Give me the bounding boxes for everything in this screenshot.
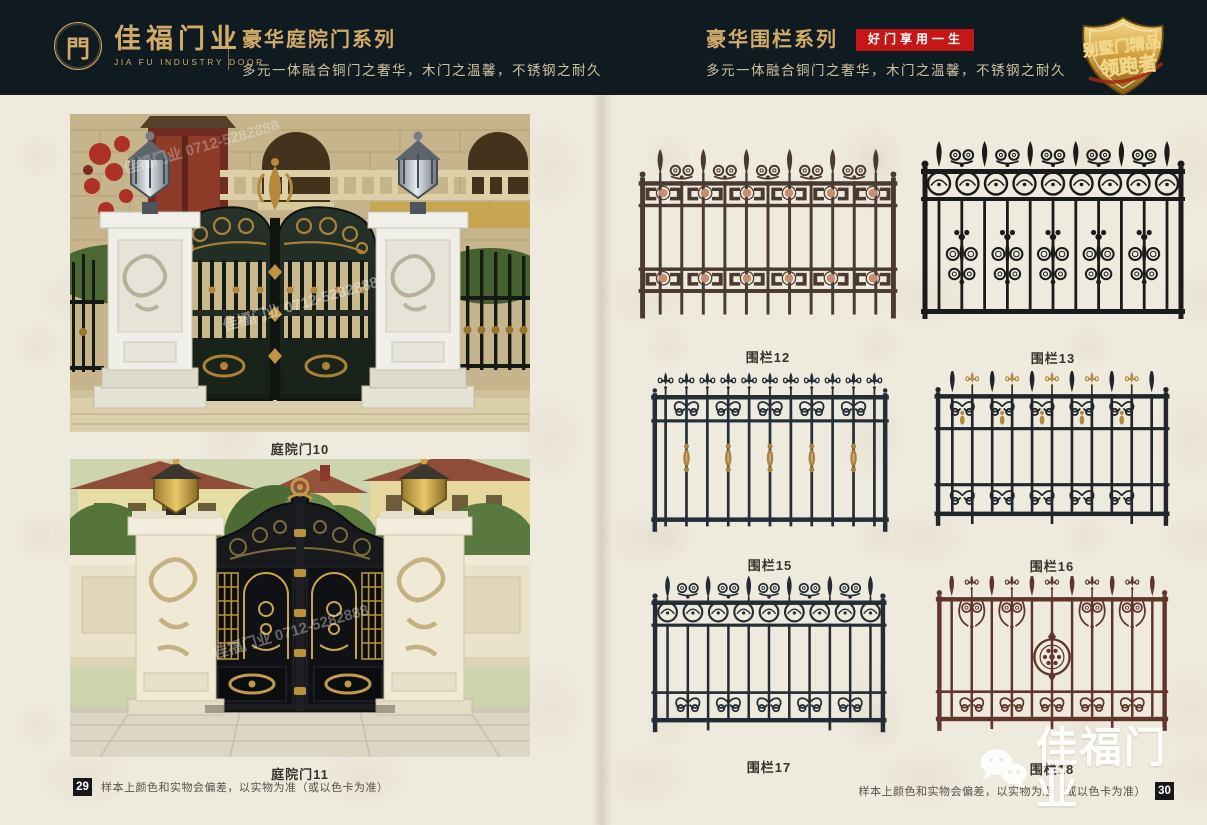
product-photo-figure-1: 佳福门业 0712-5282888 佳福门业 0712-5282888 庭院门1…: [70, 114, 530, 458]
footer-left: 29 样本上颜色和实物会偏差，以实物为准（或以色卡为准）: [73, 778, 389, 796]
header-divider: [228, 26, 229, 70]
series-section-left: 豪华庭院门系列 多元一体融合铜门之奢华，木门之温馨，不锈钢之耐久: [242, 29, 602, 79]
door-emblem-icon: 門: [54, 22, 102, 70]
series-subtitle-right: 多元一体融合铜门之奢华，木门之温馨，不锈钢之耐久: [706, 59, 1066, 79]
product-caption: 庭院门10: [70, 439, 530, 458]
fence-illustration: [916, 371, 1188, 549]
series-subtitle-left: 多元一体融合铜门之奢华，木门之温馨，不锈钢之耐久: [242, 59, 602, 79]
color-disclaimer: 样本上颜色和实物会偏差，以实物为准（或以色卡为准）: [101, 779, 389, 795]
photo-courtyard-gate-11: 佳福门业 0712-5282888: [70, 459, 530, 757]
door-glyph: 門: [66, 29, 90, 64]
brand-logo: 門 佳福门业 JIA FU INDUSTRY DOOR: [54, 22, 265, 70]
award-shield-badge: 别墅门精品 领跑者: [1052, 12, 1194, 100]
brand-watermark-text: 佳福门业: [1036, 727, 1207, 811]
fence-caption: 围栏12: [630, 347, 906, 366]
fence-caption: 围栏13: [912, 348, 1194, 367]
fence-figure-17: 围栏17: [632, 572, 906, 776]
fence-illustration: [634, 368, 906, 548]
header: 門 佳福门业 JIA FU INDUSTRY DOOR 豪华庭院门系列 多元一体…: [0, 0, 1207, 95]
brand-watermark: 佳福门业: [978, 727, 1207, 811]
fence-figure-16: 围栏16: [916, 371, 1188, 575]
fence-illustration: [912, 141, 1194, 341]
fence-illustration: [630, 144, 906, 340]
catalog-spread: 門 佳福门业 JIA FU INDUSTRY DOOR 豪华庭院门系列 多元一体…: [0, 0, 1207, 825]
product-photo-figure-2: 佳福门业 0712-5282888 庭院门11: [70, 459, 530, 783]
fence-figure-12: 围栏12: [630, 144, 906, 366]
series-section-right: 豪华围栏系列 好门享用一生 多元一体融合铜门之奢华，木门之温馨，不锈钢之耐久: [706, 29, 1066, 79]
fence-caption: 围栏17: [632, 757, 906, 776]
fence-figure-15: 围栏15: [634, 368, 906, 574]
photo-courtyard-gate-10: 佳福门业 0712-5282888 佳福门业 0712-5282888: [70, 114, 530, 432]
series-title-left: 豪华庭院门系列: [242, 29, 602, 51]
page-number: 29: [73, 778, 92, 796]
fence-caption: 围栏16: [916, 556, 1188, 575]
fence-figure-13: 围栏13: [912, 141, 1194, 367]
fence-illustration: [632, 572, 906, 750]
series-title-right: 豪华围栏系列: [706, 29, 838, 51]
center-fold: [592, 95, 612, 825]
slogan-badge: 好门享用一生: [856, 29, 974, 50]
wechat-icon: [978, 746, 1029, 792]
